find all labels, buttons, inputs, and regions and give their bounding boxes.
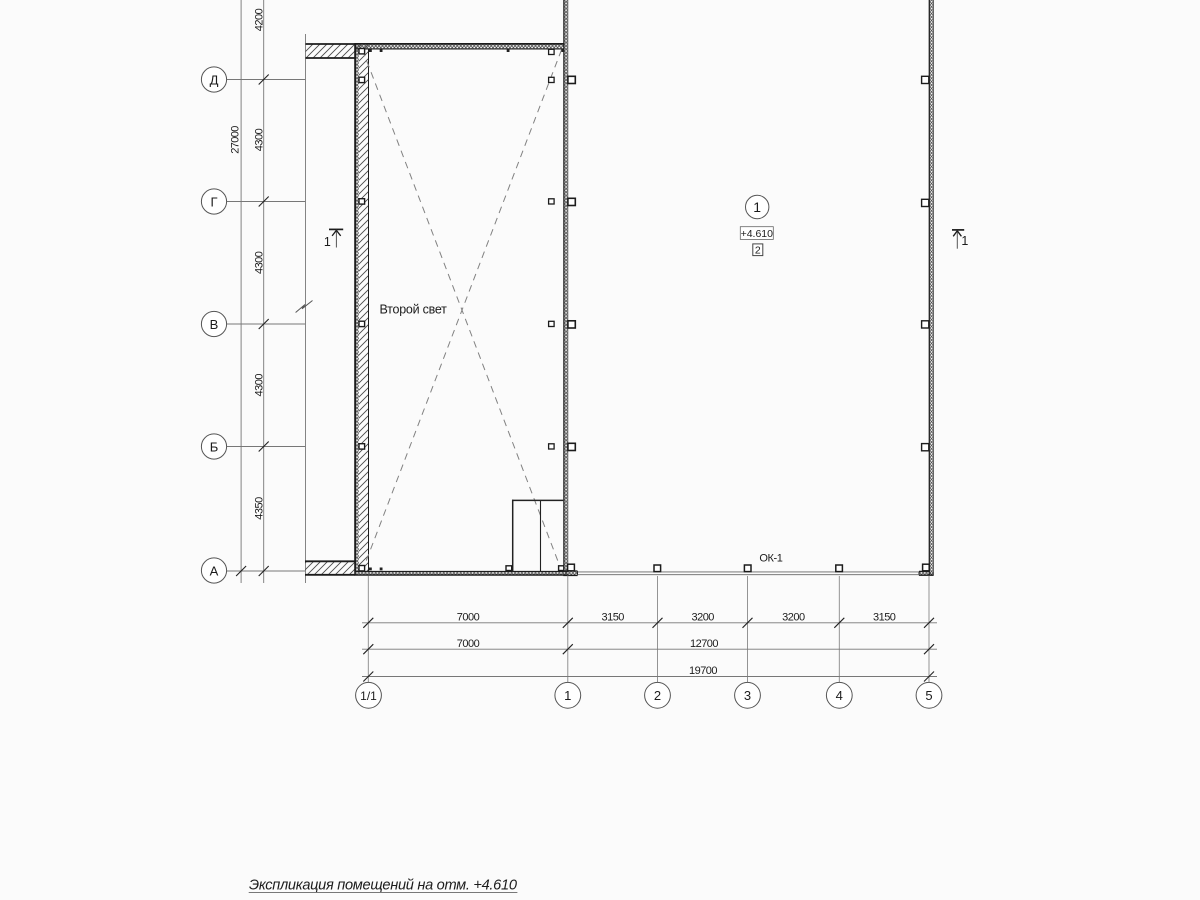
svg-text:4300: 4300 bbox=[253, 374, 265, 397]
svg-text:1: 1 bbox=[564, 688, 571, 703]
svg-text:3150: 3150 bbox=[601, 612, 624, 624]
svg-text:3: 3 bbox=[744, 688, 751, 703]
svg-text:27000: 27000 bbox=[229, 126, 241, 154]
svg-text:Экспликация помещений на отм.: Экспликация помещений на отм. +4.610 bbox=[249, 877, 517, 893]
svg-text:Г: Г bbox=[210, 194, 217, 209]
svg-text:7000: 7000 bbox=[457, 612, 480, 624]
svg-text:3150: 3150 bbox=[873, 612, 896, 624]
svg-text:В: В bbox=[210, 317, 219, 332]
svg-text:12700: 12700 bbox=[690, 638, 718, 650]
svg-text:3200: 3200 bbox=[691, 612, 714, 624]
svg-text:4300: 4300 bbox=[253, 128, 265, 151]
svg-text:7000: 7000 bbox=[457, 638, 480, 650]
svg-text:3200: 3200 bbox=[782, 612, 805, 624]
svg-text:4300: 4300 bbox=[253, 251, 265, 274]
svg-text:1: 1 bbox=[753, 199, 761, 215]
svg-text:Б: Б bbox=[210, 439, 219, 454]
svg-text:1: 1 bbox=[961, 234, 968, 248]
svg-text:+4.610: +4.610 bbox=[741, 228, 774, 240]
svg-text:5: 5 bbox=[925, 688, 932, 703]
svg-text:2: 2 bbox=[654, 688, 661, 703]
svg-text:2: 2 bbox=[755, 245, 761, 257]
svg-text:19700: 19700 bbox=[689, 665, 717, 677]
svg-text:1/1: 1/1 bbox=[360, 689, 377, 703]
svg-text:4350: 4350 bbox=[253, 497, 265, 520]
svg-text:4200: 4200 bbox=[253, 8, 265, 31]
svg-text:А: А bbox=[210, 563, 219, 578]
svg-text:4: 4 bbox=[836, 688, 843, 703]
svg-text:ОК-1: ОК-1 bbox=[759, 553, 782, 565]
svg-text:Второй свет: Второй свет bbox=[380, 302, 448, 316]
svg-text:Д: Д bbox=[210, 72, 219, 87]
svg-text:1: 1 bbox=[324, 235, 331, 249]
